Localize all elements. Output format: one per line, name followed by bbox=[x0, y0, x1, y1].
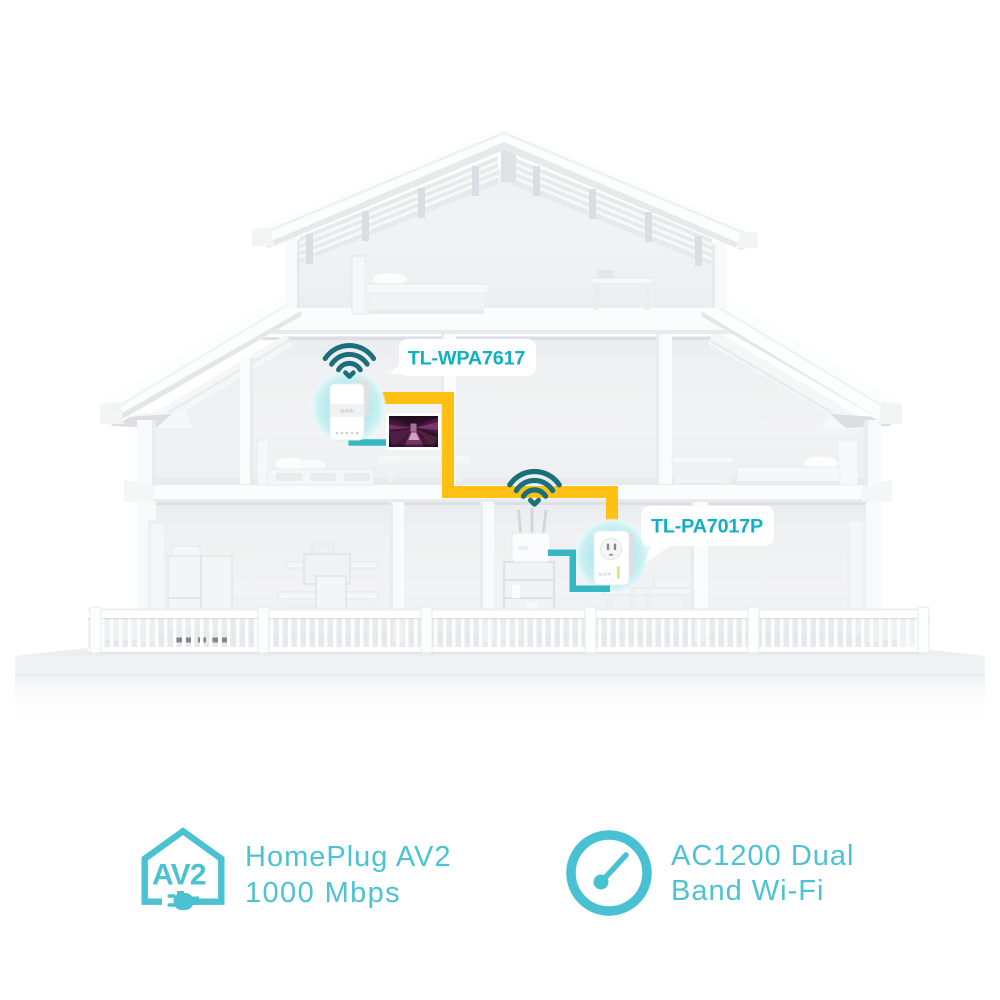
svg-text:AV2: AV2 bbox=[152, 859, 206, 892]
svg-text:AC1200 Dual: AC1200 Dual bbox=[671, 840, 855, 872]
svg-text:tp-link: tp-link bbox=[340, 409, 354, 415]
svg-text:tp-link: tp-link bbox=[599, 572, 612, 577]
svg-text:TL-WPA7617: TL-WPA7617 bbox=[408, 348, 526, 370]
svg-text:TL-PA7017P: TL-PA7017P bbox=[651, 516, 763, 538]
svg-text:Band Wi-Fi: Band Wi-Fi bbox=[671, 875, 824, 907]
svg-text:HomePlug AV2: HomePlug AV2 bbox=[245, 841, 452, 873]
svg-text:1000 Mbps: 1000 Mbps bbox=[245, 877, 401, 909]
